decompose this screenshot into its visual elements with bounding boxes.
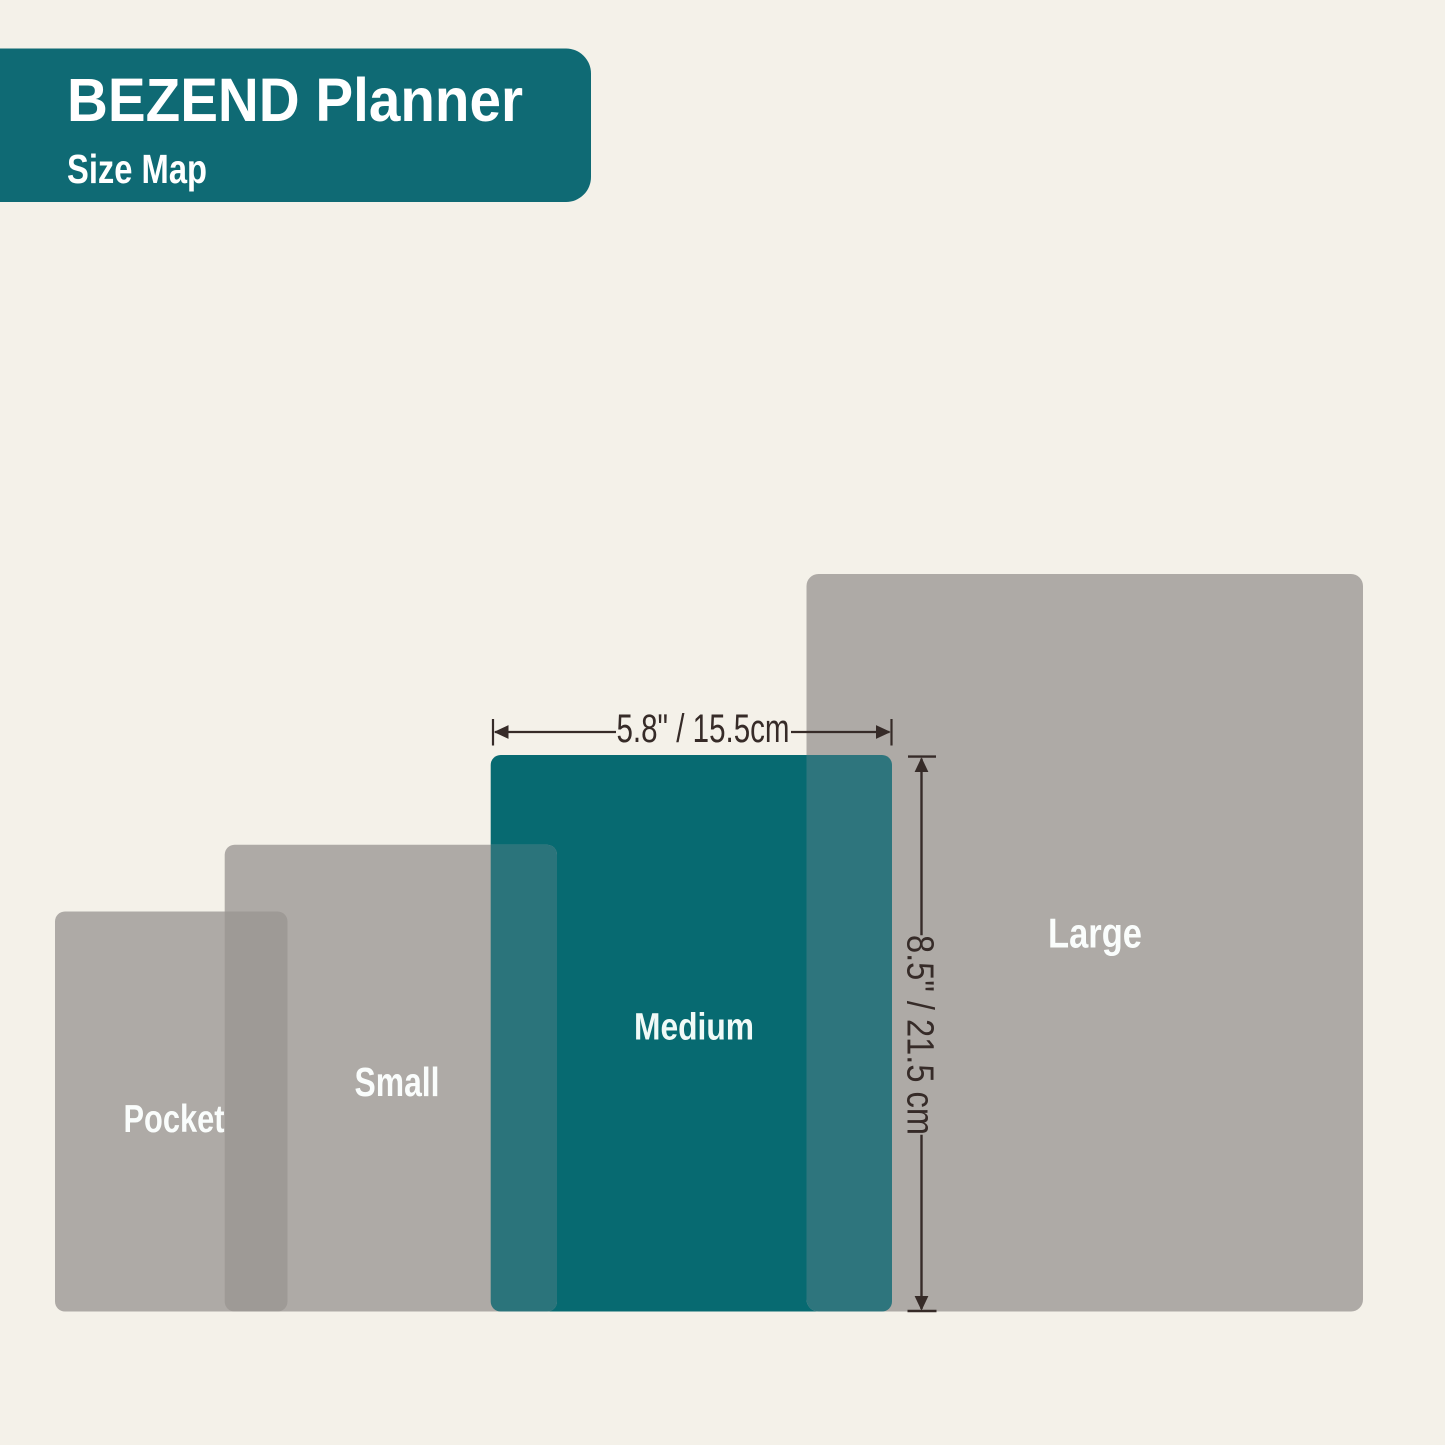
svg-text:5.8" / 15.5cm: 5.8" / 15.5cm	[617, 707, 790, 751]
svg-text:Large: Large	[1048, 909, 1142, 956]
svg-text:Small: Small	[355, 1059, 440, 1105]
svg-text:Pocket: Pocket	[124, 1098, 225, 1141]
svg-text:BEZEND Planner: BEZEND Planner	[67, 66, 523, 134]
svg-text:Medium: Medium	[634, 1006, 754, 1048]
svg-text:8.5" / 21.5 cm: 8.5" / 21.5 cm	[899, 935, 941, 1135]
svg-text:Size Map: Size Map	[67, 146, 207, 192]
